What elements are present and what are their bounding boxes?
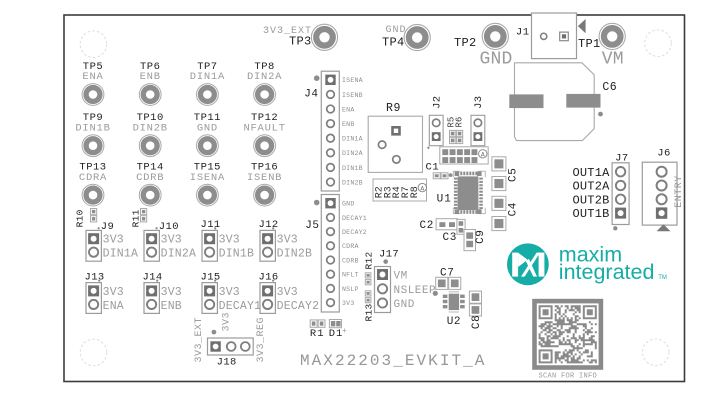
svg-text:J2: J2 (432, 95, 444, 108)
svg-text:DECAY2: DECAY2 (277, 300, 320, 313)
svg-text:3V3: 3V3 (103, 286, 124, 299)
svg-text:TM: TM (658, 275, 667, 281)
svg-text:TP2: TP2 (454, 36, 477, 50)
svg-text:integrated: integrated (559, 260, 655, 284)
svg-text:NSLEEP: NSLEEP (394, 285, 437, 297)
svg-text:3V3: 3V3 (277, 286, 298, 299)
svg-text:A: A (481, 152, 485, 159)
svg-text:J9: J9 (101, 221, 114, 233)
svg-text:3V3: 3V3 (161, 234, 182, 247)
svg-text:C6: C6 (602, 81, 617, 94)
svg-text:J10: J10 (159, 221, 179, 233)
svg-text:3V3: 3V3 (161, 286, 182, 299)
svg-text:ENA: ENA (342, 106, 354, 113)
svg-text:GND: GND (385, 25, 406, 36)
svg-text:CDRB: CDRB (342, 257, 359, 264)
svg-text:R12: R12 (364, 251, 375, 269)
svg-text:SCAN FOR INFO: SCAN FOR INFO (538, 373, 597, 381)
svg-text:VM: VM (394, 271, 408, 283)
svg-text:3V3: 3V3 (277, 234, 298, 247)
svg-text:J14: J14 (143, 271, 163, 283)
svg-text:ISENA: ISENA (190, 172, 225, 184)
svg-text:DIN1A: DIN1A (103, 248, 139, 261)
svg-text:NFLT: NFLT (342, 272, 359, 279)
svg-text:CDRA: CDRA (342, 243, 359, 250)
svg-text:OUT2A: OUT2A (572, 180, 610, 194)
svg-text:DIN2B: DIN2B (277, 248, 313, 261)
svg-text:C9: C9 (475, 229, 487, 243)
svg-text:J15: J15 (201, 271, 221, 283)
svg-text:J6: J6 (657, 147, 671, 159)
svg-text:3V3: 3V3 (219, 286, 240, 299)
svg-text:DIN2A: DIN2A (247, 71, 282, 83)
svg-text:NFAULT: NFAULT (243, 122, 285, 134)
svg-text:DIN2A: DIN2A (161, 248, 197, 261)
svg-text:J17: J17 (379, 249, 399, 261)
svg-text:ISENB: ISENB (342, 92, 363, 99)
svg-text:ENA: ENA (82, 71, 103, 83)
svg-text:GND: GND (479, 50, 512, 70)
svg-text:DECAY1: DECAY1 (219, 300, 262, 313)
svg-text:ENB: ENB (161, 300, 182, 313)
svg-text:+: + (342, 327, 347, 336)
svg-text:DIN1A: DIN1A (190, 71, 225, 83)
svg-text:ISENA: ISENA (342, 77, 363, 84)
svg-text:J16: J16 (259, 271, 279, 283)
svg-text:TP4: TP4 (382, 36, 405, 50)
svg-text:DIN2B: DIN2B (133, 122, 168, 134)
svg-text:3V3: 3V3 (222, 312, 233, 332)
svg-text:VM: VM (602, 50, 624, 70)
svg-text:DIN2B: DIN2B (342, 179, 363, 186)
svg-text:J3: J3 (473, 95, 485, 108)
svg-text:J5: J5 (305, 220, 319, 232)
svg-text:R13: R13 (364, 303, 375, 321)
svg-text:U2: U2 (447, 316, 461, 328)
svg-text:TP3: TP3 (289, 35, 312, 49)
svg-text:3V3: 3V3 (103, 234, 124, 247)
svg-text:C2: C2 (420, 220, 434, 232)
svg-text:DIN1A: DIN1A (342, 136, 363, 143)
svg-text:C5: C5 (507, 168, 519, 182)
svg-text:DECAY2: DECAY2 (342, 229, 367, 236)
svg-text:GND: GND (342, 201, 354, 208)
svg-text:J12: J12 (259, 219, 279, 231)
svg-text:3V3_EXT: 3V3_EXT (194, 317, 205, 363)
svg-text:3V3_REG: 3V3_REG (256, 317, 267, 363)
svg-text:R1: R1 (310, 328, 325, 340)
svg-text:R11: R11 (131, 209, 142, 227)
svg-text:ENB: ENB (342, 121, 354, 128)
svg-text:DECAY1: DECAY1 (342, 215, 367, 222)
svg-text:GND: GND (394, 299, 415, 311)
svg-text:ENTRY: ENTRY (674, 175, 685, 208)
svg-text:3V3: 3V3 (342, 300, 354, 307)
svg-text:OUT1B: OUT1B (572, 207, 609, 221)
svg-text:ISENB: ISENB (247, 172, 282, 184)
svg-text:R10: R10 (75, 209, 86, 227)
svg-text:J11: J11 (201, 219, 221, 231)
svg-text:J7: J7 (615, 152, 629, 164)
svg-text:J13: J13 (85, 271, 105, 283)
svg-text:TP1: TP1 (578, 37, 601, 51)
svg-text:J1: J1 (516, 27, 530, 39)
svg-text:DIN1B: DIN1B (342, 165, 363, 172)
svg-text:DIN2A: DIN2A (342, 150, 363, 157)
svg-text:GND: GND (197, 122, 218, 134)
svg-text:C8: C8 (471, 315, 483, 329)
svg-text:U1: U1 (437, 193, 452, 205)
svg-text:3V3: 3V3 (219, 234, 240, 247)
svg-text:CDRA: CDRA (79, 172, 107, 184)
svg-text:J4: J4 (304, 89, 318, 101)
svg-text:ENB: ENB (140, 71, 161, 83)
svg-text:OUT1A: OUT1A (572, 166, 610, 180)
svg-text:R6: R6 (455, 117, 465, 128)
svg-text:NSLP: NSLP (342, 286, 359, 293)
svg-text:J18: J18 (217, 357, 237, 369)
svg-text:C1: C1 (426, 161, 440, 173)
svg-text:DIN1B: DIN1B (219, 248, 255, 261)
svg-text:CDRB: CDRB (136, 172, 164, 184)
svg-text:R9: R9 (386, 102, 401, 115)
svg-text:DIN1B: DIN1B (75, 122, 110, 134)
svg-text:ENA: ENA (103, 300, 124, 313)
svg-text:C4: C4 (507, 202, 519, 216)
svg-text:C3: C3 (443, 232, 457, 244)
svg-text:OUT2B: OUT2B (572, 193, 609, 207)
svg-text:A: A (420, 185, 424, 192)
svg-text:MAX22203_EVKIT_A: MAX22203_EVKIT_A (300, 352, 486, 370)
